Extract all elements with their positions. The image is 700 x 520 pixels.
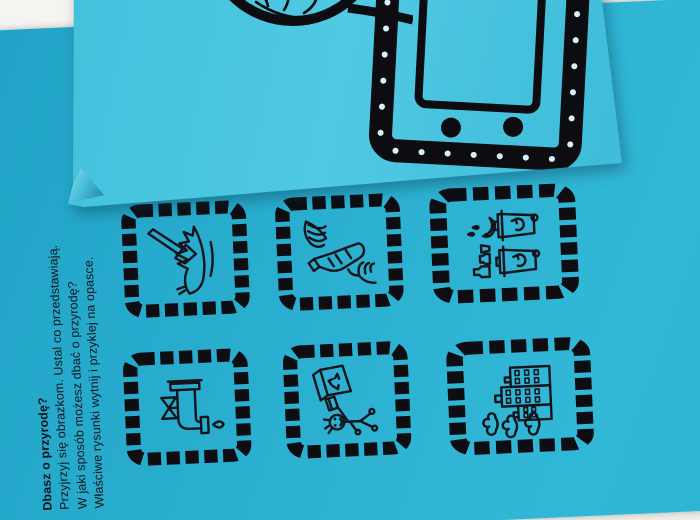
photo-scene: Dbasz o przyrodę? Przyjrzyj się obrazkom…: [0, 0, 700, 520]
recycling-bins-icon: [461, 190, 547, 297]
picture-frame-axe-chopping-fallen-tree: [118, 197, 253, 321]
picture-frame-water-tap: [120, 345, 255, 469]
picture-frame-factory-smoke: [442, 334, 597, 459]
snap-dot-left: [440, 117, 461, 138]
dripping-tap-icon: [145, 361, 229, 453]
factory-smoke-icon: [478, 343, 563, 449]
hands-crushing-plastic-bottle-icon: [297, 206, 381, 298]
picture-frame-crushing-plastic-bottle: [272, 190, 407, 314]
picture-frame-child-recycling: [279, 338, 414, 462]
axe-chopping-fallen-tree-icon: [143, 213, 227, 305]
picture-frame-waste-sorting-bins: [425, 180, 582, 307]
child-throwing-into-bin-icon: [305, 354, 389, 446]
instructions-block: Dbasz o przyrodę? Przyjrzyj się obrazkom…: [25, 171, 132, 511]
snap-dot-right: [503, 116, 524, 137]
watch-band-frame-icon: [363, 0, 628, 176]
